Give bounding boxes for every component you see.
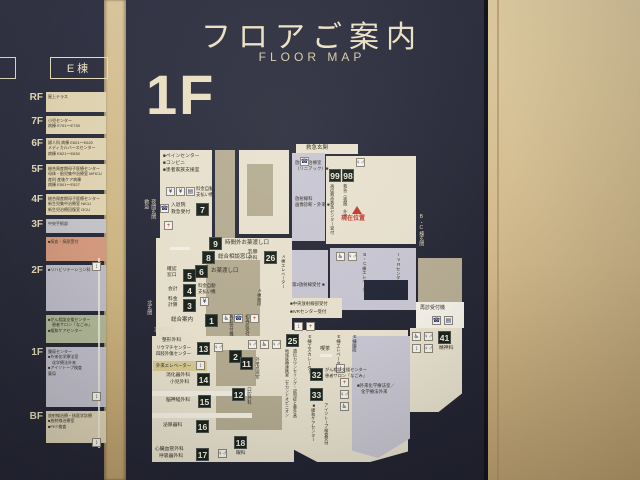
wheelchair-icon: ♿: [336, 252, 345, 261]
phone-icon: ☎: [160, 204, 169, 213]
label-26b: 外科: [248, 256, 258, 262]
entrance-emergency: 救急玄関: [306, 145, 328, 152]
sidebar-floor-row: RF屋上テラス: [20, 92, 106, 112]
label-11: 外来点滴室: [255, 357, 261, 389]
label-16: 泌尿器科: [163, 423, 182, 429]
badge-98: 98: [342, 169, 354, 182]
payment-machine-icon: ▤: [186, 187, 195, 196]
label-radiology-2: 画像診断・外来 ■: [295, 202, 330, 208]
phone-icon: ☎: [432, 316, 441, 325]
entrance-night-2: 夜間玄関: [150, 199, 156, 241]
sidebar-floor-box: 総合周産期母子医療センター母体・胎児集中治療室 MFICU産科 産後ケア病棟病棟…: [46, 164, 106, 190]
badge-3: 3: [183, 299, 196, 312]
sidebar-floor-label: 3F: [20, 219, 46, 233]
sidebar-floor-box: ■がん相談支援センター 患者サロン「なごみ」■緩和ケアセンター: [46, 315, 106, 343]
label-payment-machine-1: 料金自動: [196, 186, 214, 192]
cafe-counter-icon: [320, 354, 332, 357]
label-cafe: 喫茶: [320, 346, 330, 352]
label-convenience: ■コンビニ: [163, 161, 185, 167]
sidebar-floor-box: 婦人科 病棟 E601〜E620メディカルバースセンター病棟 E621〜E630: [46, 138, 106, 160]
sidebar-floor-line: 中央手術部: [48, 221, 104, 226]
restroom-icon: ♀♂: [424, 344, 433, 353]
floor-map-sign-photo: フロアご案内 FLOOR MAP 1F E棟 RF屋上テラス7F小児センター病棟…: [0, 0, 640, 480]
sidebar-floor-label: 4F: [20, 194, 46, 215]
kiosk-icon: ▤: [444, 316, 453, 325]
payment-machine-icon: ¥: [200, 297, 209, 306]
badge-99: 99: [329, 169, 341, 182]
sidebar-floor-label: 2F: [20, 265, 46, 311]
building-header-partial: [0, 57, 16, 79]
pharmacy-icon: +: [250, 314, 259, 323]
label-admission-2: 救急受付: [171, 210, 190, 216]
sidebar-floor-box: ■採血・採尿受付: [46, 237, 106, 261]
restroom-icon: ♀♂: [218, 449, 227, 458]
sidebar-floor-row: 4F総合周産期母子医療センター新生児集中治療室 NICU新生児治療回復室 GCU: [20, 194, 106, 215]
sidebar-floor-line: メディカルバースセンター: [48, 145, 104, 150]
elevator-icon: ↕: [92, 262, 101, 271]
sidebar-floor-box: 中央手術部: [46, 219, 106, 233]
sidebar-floor-box: ■リハビリテーション科: [46, 265, 106, 311]
sidebar-floor-label: 6F: [20, 138, 46, 160]
elevator-icon: ↕: [196, 361, 205, 370]
wheelchair-icon: ♿: [412, 332, 421, 341]
label-18: 眼科: [236, 451, 246, 457]
corridor: [152, 413, 252, 418]
label-a-elevator: A棟エレベーター: [281, 254, 286, 296]
restroom-icon: ♀♂: [248, 340, 257, 349]
wheelchair-icon: ♿: [260, 340, 269, 349]
sidebar-floor-box: 小児センター病棟 E701〜E735: [46, 116, 106, 134]
label-3b: 計算: [168, 303, 178, 309]
map-block-c-inner: [247, 164, 273, 216]
restroom-icon: ♀♂: [272, 340, 281, 349]
restroom-icon: ♀♂: [214, 343, 223, 352]
wheelchair-icon: ♿: [340, 402, 349, 411]
sidebar-floor-line: ■PET検査: [48, 424, 104, 429]
floor-label: 1F: [146, 62, 215, 127]
label-25a: 地域医療連携室（セカンドオピニオン: [285, 349, 290, 435]
map-block-chemo: [352, 336, 410, 458]
label-13a: 整形外科: [162, 338, 181, 344]
badge-13: 13: [197, 342, 210, 355]
bulletin-board-icon: [170, 247, 190, 250]
sidebar-floor-label: 7F: [20, 116, 46, 134]
label-4r1: 料金自動: [198, 283, 216, 289]
badge-41: 41: [438, 331, 451, 344]
entrance-north: 北玄関: [146, 300, 152, 328]
elevator-icon: ↕: [412, 344, 421, 353]
sidebar-floor-label: BF: [20, 411, 46, 443]
badge-14: 14: [197, 373, 210, 386]
sidebar-floor-row: 2F■リハビリテーション科: [20, 265, 106, 311]
label-99: 高度救命救急センター受付: [330, 184, 335, 242]
sidebar-floor-row: 3F中央手術部: [20, 219, 106, 233]
sidebar-floor-line: ■緩和ケアセンター: [48, 328, 104, 333]
restaurant-icon: +: [340, 378, 349, 387]
current-location-marker: [352, 206, 362, 214]
pharmacy-icon: +: [164, 221, 173, 230]
badge-5: 5: [183, 269, 196, 282]
phone-icon: ☎: [300, 157, 309, 166]
map-block-radiology2: [290, 250, 328, 298]
sidebar-floor-line: 病棟 E701〜E735: [48, 123, 104, 128]
label-1: 総合案内: [171, 317, 193, 324]
label-linac-2: （リニアック）■: [295, 166, 328, 172]
phone-icon: ☎: [234, 314, 243, 323]
label-bc-elevator: B・C棟エレベーター: [362, 252, 367, 296]
sidebar-floor-row: 5F総合周産期母子医療センター母体・胎児集中治療室 MFICU産科 産後ケア病棟…: [20, 164, 106, 190]
label-12: 口腔外科: [247, 387, 253, 413]
label-14a: 消化器外科: [166, 373, 190, 379]
payment-machine-icon: ¥: [166, 187, 175, 196]
label-13b: リウマチセンター: [156, 345, 191, 351]
payment-machine-icon: ¥: [176, 187, 185, 196]
restroom-icon: ♀♂: [348, 252, 357, 261]
badge-7: 7: [196, 203, 209, 216]
sidebar-floor-box: 屋上テラス: [46, 92, 106, 112]
badge-33: 33: [310, 388, 323, 401]
label-ivr: ■IVRセンター受付: [290, 309, 326, 315]
label-isotope: アイソトープ検査受付: [324, 403, 329, 463]
wall-seam: [497, 0, 499, 480]
map-block-right-tan: [418, 258, 462, 302]
label-pain-center: ■ペインセンター: [163, 154, 199, 160]
badge-16: 16: [196, 420, 209, 433]
label-payment-machine-2: 支払い機: [196, 192, 214, 198]
entrance-main-1: 正面玄関: [154, 327, 174, 333]
restroom-icon: ♀♂: [356, 158, 365, 167]
sidebar-floor-label: [20, 237, 46, 261]
sidebar-floor-line: ■採血・採尿受付: [48, 239, 104, 244]
label-5b: 窓口: [167, 273, 177, 279]
badge-8: 8: [202, 251, 215, 264]
label-4: 会計: [168, 287, 178, 293]
label-ivr-vertical: IVRセンター受付: [396, 252, 401, 298]
label-98: 救急（夜間）外来: [343, 184, 348, 232]
label-central-radiology: ■中央放射線部受付: [290, 301, 328, 307]
label-4r2: 支払い機: [198, 289, 216, 295]
entrance-night-1: 救急: [143, 199, 149, 221]
sidebar-floor-row: 7F小児センター病棟 E701〜E735: [20, 116, 106, 134]
current-location-label: 現在位置: [341, 216, 365, 224]
sidebar-floor-label: 1F: [20, 347, 46, 407]
badge-15: 15: [198, 395, 211, 408]
sidebar-floor-row: ■がん相談支援センター 患者サロン「なごみ」■緩和ケアセンター: [20, 315, 106, 343]
map-block-shaft: [364, 280, 408, 300]
sidebar-floor-line: 病棟 E501〜E527: [48, 182, 104, 187]
sidebar-floor-box: 総合周産期母子医療センター新生児集中治療室 NICU新生児治療回復室 GCU: [46, 194, 106, 215]
badge-1: 1: [205, 314, 218, 327]
badge-9: 9: [209, 237, 222, 250]
label-radiology2: 第2放射線受付 ■: [292, 282, 325, 288]
badge-25: 25: [286, 334, 299, 347]
label-33: ■緩和ケアセンター: [311, 403, 316, 455]
entrance-bc: B・C棟玄関: [418, 214, 424, 288]
sidebar-floor-label: 5F: [20, 164, 46, 190]
label-e-stairs: E棟階段: [352, 334, 358, 364]
badge-12: 12: [232, 388, 245, 401]
sidebar-floor-line: 薬局: [48, 371, 104, 376]
label-17b: 呼吸器外科: [159, 454, 183, 460]
elevator-icon: ↕: [294, 322, 303, 331]
label-14b: 小児外科: [170, 380, 189, 386]
building-header: E棟: [50, 57, 108, 79]
label-9: 時間外お薬渡し口: [225, 240, 269, 247]
badge-18: 18: [234, 436, 247, 449]
label-chemo-2: 化学療法外来: [361, 389, 387, 395]
sidebar-floor-line: 屋上テラス: [48, 94, 104, 99]
sidebar-floor-label: RF: [20, 92, 46, 112]
label-8: 総合相談窓口: [218, 254, 251, 261]
label-32a: がん相談支援センター: [325, 367, 367, 372]
badge-6: 6: [195, 265, 208, 278]
sidebar-floor-line: 新生児治療回復室 GCU: [48, 207, 104, 212]
label-outpatient-elevator: 外来エレベーター: [156, 363, 191, 369]
badge-11: 11: [240, 357, 253, 370]
restroom-icon: ♀♂: [340, 390, 349, 399]
sidebar-floor-row: 6F婦人科 病棟 E601〜E620メディカルバースセンター病棟 E621〜E6…: [20, 138, 106, 160]
label-a-stairs: A棟階段: [257, 288, 262, 310]
elevator-icon: ↕: [92, 438, 101, 447]
badge-17: 17: [196, 448, 209, 461]
label-family-room: ■患者家族支援室: [163, 168, 199, 174]
label-kiosk: 再診受付機: [420, 305, 445, 311]
restroom-icon: ♀♂: [424, 332, 433, 341]
sidebar-elevator-line: [98, 258, 100, 448]
sidebar-floor-line: 病棟 E621〜E630: [48, 151, 104, 156]
badge-4: 4: [183, 284, 196, 297]
label-15: 脳神経外科: [166, 398, 190, 404]
label-2-kiosk: 再診受付機: [229, 314, 235, 348]
label-17a: 心臓血管外科: [155, 447, 184, 453]
sidebar-floor-line: 母体・胎児集中治療室 MFICU: [48, 171, 104, 176]
badge-32: 32: [310, 368, 323, 381]
elevator-icon: ↕: [92, 392, 101, 401]
sidebar-floor-row: ■採血・採尿受付: [20, 237, 106, 261]
label-chemo-1: ■外来化学療法室／: [357, 383, 395, 389]
label-radiology-1: 放射線科: [295, 196, 313, 202]
label-41: 精神科: [439, 346, 453, 352]
badge-26: 26: [264, 251, 277, 264]
label-13c: 四肢外傷センター: [156, 351, 191, 357]
map-block-strip: [215, 150, 235, 242]
label-admission-1: 入退院: [171, 203, 185, 209]
label-6: お薬渡し口: [211, 268, 239, 275]
wall: [488, 0, 640, 480]
pharmacy-icon: +: [306, 322, 315, 331]
label-25b: 遺伝カウンセリング・認知症と薬外来）: [293, 349, 298, 435]
sidebar-floor-label: [20, 315, 46, 343]
